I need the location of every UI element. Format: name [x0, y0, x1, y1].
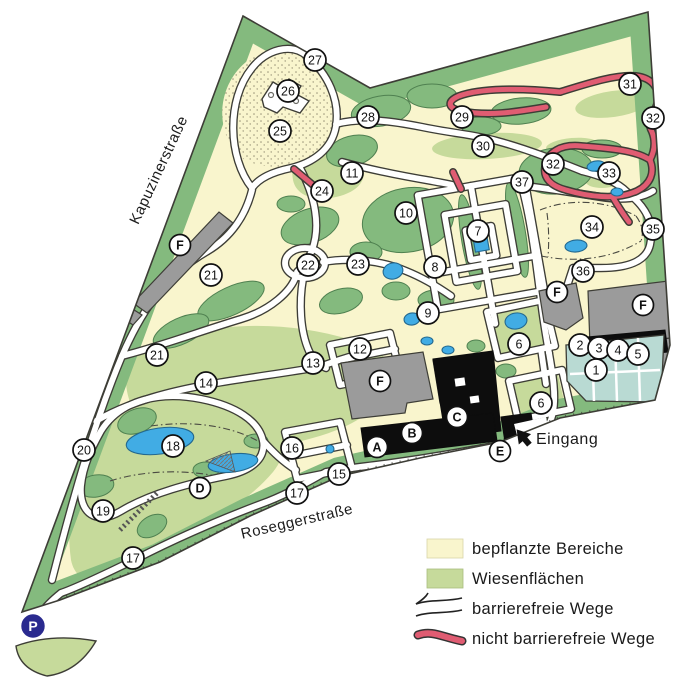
svg-text:F: F — [376, 375, 384, 389]
poi-marker-30[interactable]: 30 — [472, 135, 494, 157]
svg-text:16: 16 — [285, 442, 299, 456]
letter-marker-C[interactable]: C — [447, 407, 468, 428]
poi-marker-10[interactable]: 10 — [395, 202, 417, 224]
svg-text:36: 36 — [576, 265, 590, 279]
svg-text:D: D — [195, 482, 204, 496]
poi-marker-7[interactable]: 7 — [467, 220, 489, 242]
svg-text:22: 22 — [301, 259, 315, 273]
svg-text:4: 4 — [615, 344, 622, 358]
poi-marker-12[interactable]: 12 — [349, 338, 371, 360]
courtyard — [454, 377, 465, 386]
park-map: KapuzinerstraßeRoseggerstraße 1234566789… — [0, 0, 680, 680]
legend-swatch-meadow — [427, 569, 463, 588]
svg-text:11: 11 — [346, 167, 359, 181]
poi-marker-22[interactable]: 22 — [297, 254, 319, 276]
poi-marker-31[interactable]: 31 — [619, 73, 641, 95]
svg-text:1: 1 — [593, 364, 600, 378]
poi-marker-26[interactable]: 26 — [277, 80, 299, 102]
svg-text:5: 5 — [635, 348, 642, 362]
poi-marker-9[interactable]: 9 — [417, 302, 439, 324]
poi-marker-19[interactable]: 19 — [92, 500, 114, 522]
poi-marker-21[interactable]: 21 — [146, 344, 168, 366]
svg-text:10: 10 — [399, 207, 413, 221]
poi-marker-17[interactable]: 17 — [286, 482, 308, 504]
legend-symbol-path — [416, 593, 462, 616]
poi-marker-23[interactable]: 23 — [347, 253, 369, 275]
poi-marker-25[interactable]: 25 — [269, 120, 291, 142]
svg-text:32: 32 — [646, 112, 660, 126]
poi-marker-6[interactable]: 6 — [508, 333, 530, 355]
svg-text:37: 37 — [515, 176, 529, 190]
svg-text:13: 13 — [306, 357, 320, 371]
entrance-layer: Eingang — [536, 431, 598, 448]
parking-layer: P — [21, 614, 46, 639]
poi-marker-6[interactable]: 6 — [530, 392, 552, 414]
letter-marker-B[interactable]: B — [402, 423, 423, 444]
poi-marker-14[interactable]: 14 — [195, 372, 217, 394]
svg-text:33: 33 — [602, 167, 616, 181]
svg-text:15: 15 — [332, 468, 346, 482]
poi-marker-34[interactable]: 34 — [581, 216, 603, 238]
svg-text:2: 2 — [577, 339, 584, 353]
svg-text:F: F — [553, 286, 561, 300]
svg-text:20: 20 — [77, 444, 91, 458]
svg-text:E: E — [496, 445, 504, 459]
svg-text:A: A — [372, 441, 381, 455]
poi-marker-29[interactable]: 29 — [451, 106, 473, 128]
poi-marker-32[interactable]: 32 — [542, 153, 564, 175]
letter-marker-F[interactable]: F — [170, 235, 191, 256]
svg-text:35: 35 — [646, 223, 660, 237]
garden-map-page: KapuzinerstraßeRoseggerstraße 1234566789… — [0, 0, 680, 680]
poi-marker-32[interactable]: 32 — [642, 107, 664, 129]
svg-text:18: 18 — [166, 440, 180, 454]
svg-text:34: 34 — [585, 221, 599, 235]
svg-text:7: 7 — [475, 225, 482, 239]
svg-text:19: 19 — [96, 505, 110, 519]
svg-text:27: 27 — [308, 54, 322, 68]
svg-text:F: F — [639, 299, 647, 313]
legend-label-meadow: Wiesenflächen — [472, 570, 584, 588]
svg-text:17: 17 — [290, 487, 304, 501]
poi-marker-8[interactable]: 8 — [424, 256, 446, 278]
poi-marker-13[interactable]: 13 — [302, 352, 324, 374]
poi-marker-35[interactable]: 35 — [642, 218, 664, 240]
poi-marker-15[interactable]: 15 — [328, 463, 350, 485]
letter-marker-F[interactable]: F — [633, 295, 654, 316]
svg-text:25: 25 — [273, 125, 287, 139]
svg-text:F: F — [176, 239, 184, 253]
svg-text:28: 28 — [361, 111, 375, 125]
svg-text:32: 32 — [546, 158, 560, 172]
svg-text:P: P — [28, 618, 37, 634]
svg-text:23: 23 — [351, 258, 365, 272]
poi-marker-33[interactable]: 33 — [598, 162, 620, 184]
poi-marker-1[interactable]: 1 — [585, 359, 607, 381]
svg-text:31: 31 — [623, 78, 637, 92]
poi-marker-28[interactable]: 28 — [357, 106, 379, 128]
svg-text:29: 29 — [455, 111, 469, 125]
svg-text:17: 17 — [126, 552, 140, 566]
legend-label-planted: bepflanzte Bereiche — [472, 540, 624, 558]
letter-marker-F[interactable]: F — [370, 371, 391, 392]
legend-label-path: barrierefreie Wege — [472, 600, 614, 618]
svg-text:21: 21 — [150, 349, 164, 363]
svg-text:9: 9 — [425, 307, 432, 321]
poi-marker-16[interactable]: 16 — [281, 437, 303, 459]
courtyard — [470, 395, 480, 403]
poi-marker-17[interactable]: 17 — [122, 547, 144, 569]
letter-marker-A[interactable]: A — [367, 437, 388, 458]
letter-marker-F[interactable]: F — [547, 282, 568, 303]
svg-text:B: B — [407, 427, 416, 441]
svg-text:14: 14 — [199, 377, 213, 391]
svg-text:26: 26 — [281, 85, 295, 99]
svg-text:8: 8 — [432, 261, 439, 275]
svg-text:21: 21 — [204, 269, 218, 283]
poi-marker-5[interactable]: 5 — [627, 343, 649, 365]
svg-text:6: 6 — [516, 338, 523, 352]
legend-symbol-redpath — [418, 633, 462, 641]
svg-text:24: 24 — [315, 185, 329, 199]
svg-text:30: 30 — [476, 140, 490, 154]
svg-text:12: 12 — [353, 343, 367, 357]
poi-marker-4[interactable]: 4 — [607, 339, 629, 361]
parking-icon[interactable]: P — [21, 614, 46, 639]
svg-text:C: C — [452, 411, 461, 425]
poi-marker-11[interactable]: 11 — [341, 162, 363, 184]
legend-swatch-planted — [427, 539, 463, 558]
poi-marker-24[interactable]: 24 — [311, 180, 333, 202]
park-tip-leaf — [16, 638, 96, 676]
svg-text:6: 6 — [538, 397, 545, 411]
legend-label-redpath: nicht barrierefreie Wege — [472, 630, 655, 648]
letter-marker-D[interactable]: D — [190, 478, 211, 499]
poi-marker-36[interactable]: 36 — [572, 260, 594, 282]
poi-marker-20[interactable]: 20 — [73, 439, 95, 461]
svg-text:3: 3 — [596, 342, 603, 356]
letter-marker-E[interactable]: E — [490, 441, 511, 462]
legend: bepflanzte Bereiche Wiesenflächen barrie… — [416, 539, 655, 648]
poi-marker-18[interactable]: 18 — [162, 435, 184, 457]
entrance-label: Eingang — [536, 431, 598, 448]
poi-marker-27[interactable]: 27 — [304, 49, 326, 71]
poi-marker-21[interactable]: 21 — [200, 264, 222, 286]
poi-marker-37[interactable]: 37 — [511, 171, 533, 193]
